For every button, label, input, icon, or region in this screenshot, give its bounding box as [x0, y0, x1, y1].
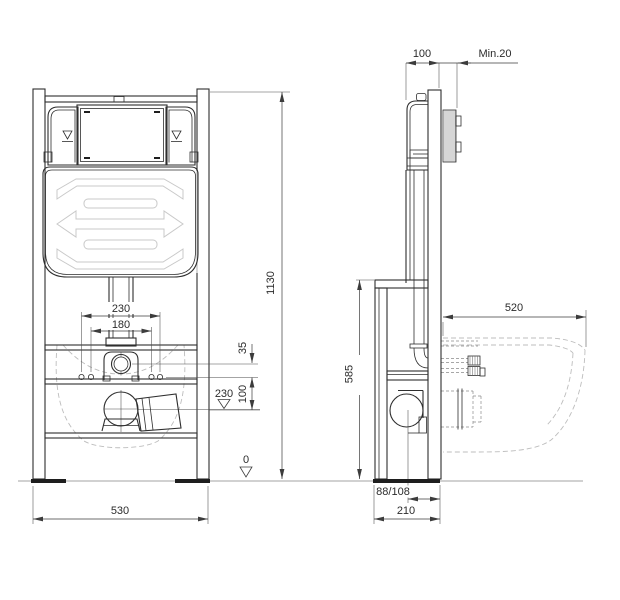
- dim-frame-depth: 210: [397, 505, 415, 517]
- bowl-outline-front: [56, 345, 185, 448]
- level-mark-icon: [62, 131, 182, 142]
- technical-drawing-canvas: 230 180 35 100 230 0 1130: [0, 0, 620, 600]
- level-label-230: 230: [215, 388, 233, 400]
- support-bracket: [375, 280, 428, 479]
- bowl-outline-side: [443, 338, 585, 452]
- dim-total-width: 530: [111, 505, 129, 517]
- dim-support-height: 585: [344, 365, 356, 383]
- wall-plate-hatched: [443, 110, 461, 162]
- dim-bolt-spacing-outer: 230: [112, 303, 130, 315]
- outlet-pipe-side: [441, 389, 481, 430]
- access-panel: [44, 105, 198, 165]
- cistern-front: [43, 167, 198, 277]
- dim-bolt-spacing-inner: 180: [112, 319, 130, 331]
- flush-pipe-side: [406, 170, 428, 368]
- inlet-fitting: [103, 352, 139, 381]
- installation-frame-diagram: 230 180 35 100 230 0 1130: [0, 0, 620, 600]
- dim-total-height: 1130: [265, 271, 277, 295]
- front-dimensions: 230 180 35 100 230 0 1130: [33, 92, 290, 524]
- level-triangle-icon: [240, 467, 252, 477]
- level-triangle-icon: [218, 400, 230, 409]
- bowl-connections: [441, 341, 485, 430]
- inspection-window: [77, 105, 167, 165]
- top-crossbar: [45, 96, 197, 102]
- lower-rail: [45, 433, 197, 438]
- side-dimensions: 100 Min.20 585 520 88/108 210: [344, 48, 587, 524]
- front-view: 230 180 35 100 230 0 1130: [31, 89, 290, 524]
- fixing-bolts-hatched: [468, 356, 485, 376]
- wall-rail: [428, 90, 441, 479]
- middle-rail: [45, 379, 197, 384]
- side-foot-plate: [373, 479, 440, 483]
- dim-bowl-projection: 520: [505, 302, 523, 314]
- level-label-0: 0: [243, 454, 249, 466]
- dim-inlet-to-outlet: 100: [237, 385, 249, 403]
- cistern-emboss-arrows: [57, 179, 183, 269]
- dim-rail-to-inlet: 35: [237, 342, 249, 354]
- side-view: 100 Min.20 585 520 88/108 210: [344, 48, 587, 524]
- dim-wall-cover-min: Min.20: [478, 48, 511, 60]
- hanger-tab: [114, 97, 124, 103]
- dim-outlet-offset: 88/108: [376, 486, 410, 498]
- cistern-side: [407, 94, 428, 171]
- dim-cistern-depth: 100: [413, 48, 431, 60]
